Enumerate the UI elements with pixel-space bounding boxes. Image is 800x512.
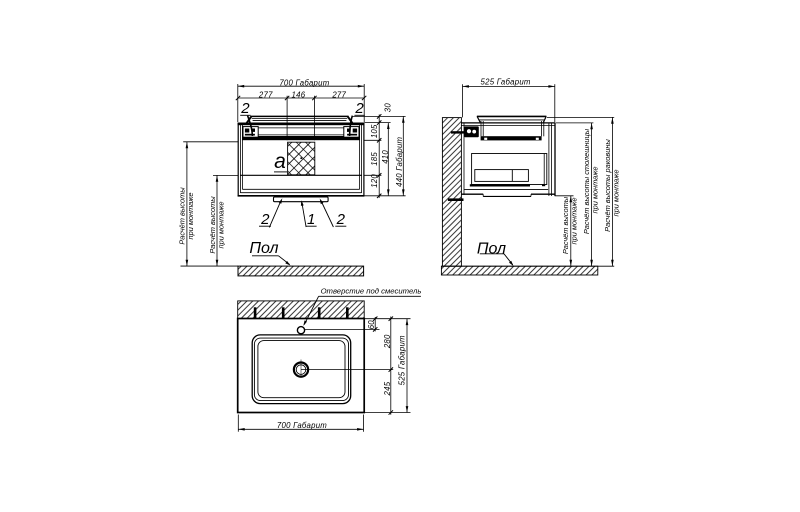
svg-text:120: 120 (370, 174, 379, 188)
svg-text:при монтаже: при монтаже (611, 170, 620, 217)
svg-text:105: 105 (370, 124, 379, 138)
svg-text:525 Габарит: 525 Габарит (481, 78, 531, 87)
svg-text:Пол: Пол (249, 240, 278, 257)
svg-text:146: 146 (292, 90, 306, 99)
svg-text:при монтаже: при монтаже (216, 202, 225, 249)
svg-text:при монтаже: при монтаже (570, 198, 579, 245)
svg-text:280: 280 (383, 334, 392, 349)
svg-text:440 Габарит: 440 Габарит (395, 136, 404, 186)
svg-text:700 Габарит: 700 Габарит (279, 78, 329, 87)
svg-text:277: 277 (258, 90, 273, 99)
svg-text:30: 30 (384, 103, 393, 113)
svg-text:1: 1 (307, 211, 315, 228)
svg-text:при монтаже: при монтаже (186, 193, 195, 240)
svg-text:185: 185 (370, 152, 379, 166)
svg-text:a: a (274, 150, 286, 173)
svg-text:277: 277 (331, 90, 346, 99)
svg-text:при монтаже: при монтаже (591, 167, 600, 214)
svg-text:245: 245 (383, 381, 392, 396)
svg-text:Отверстие под смеситель: Отверстие под смеситель (321, 286, 422, 295)
svg-text:700 Габарит: 700 Габарит (277, 421, 327, 430)
svg-text:2: 2 (240, 100, 250, 117)
svg-text:2: 2 (336, 211, 346, 228)
svg-text:60: 60 (367, 320, 376, 330)
svg-text:2: 2 (354, 100, 364, 117)
svg-text:410: 410 (381, 150, 390, 164)
svg-text:Пол: Пол (477, 240, 506, 257)
svg-text:2: 2 (260, 211, 270, 228)
svg-text:525 Габарит: 525 Габарит (397, 335, 406, 385)
